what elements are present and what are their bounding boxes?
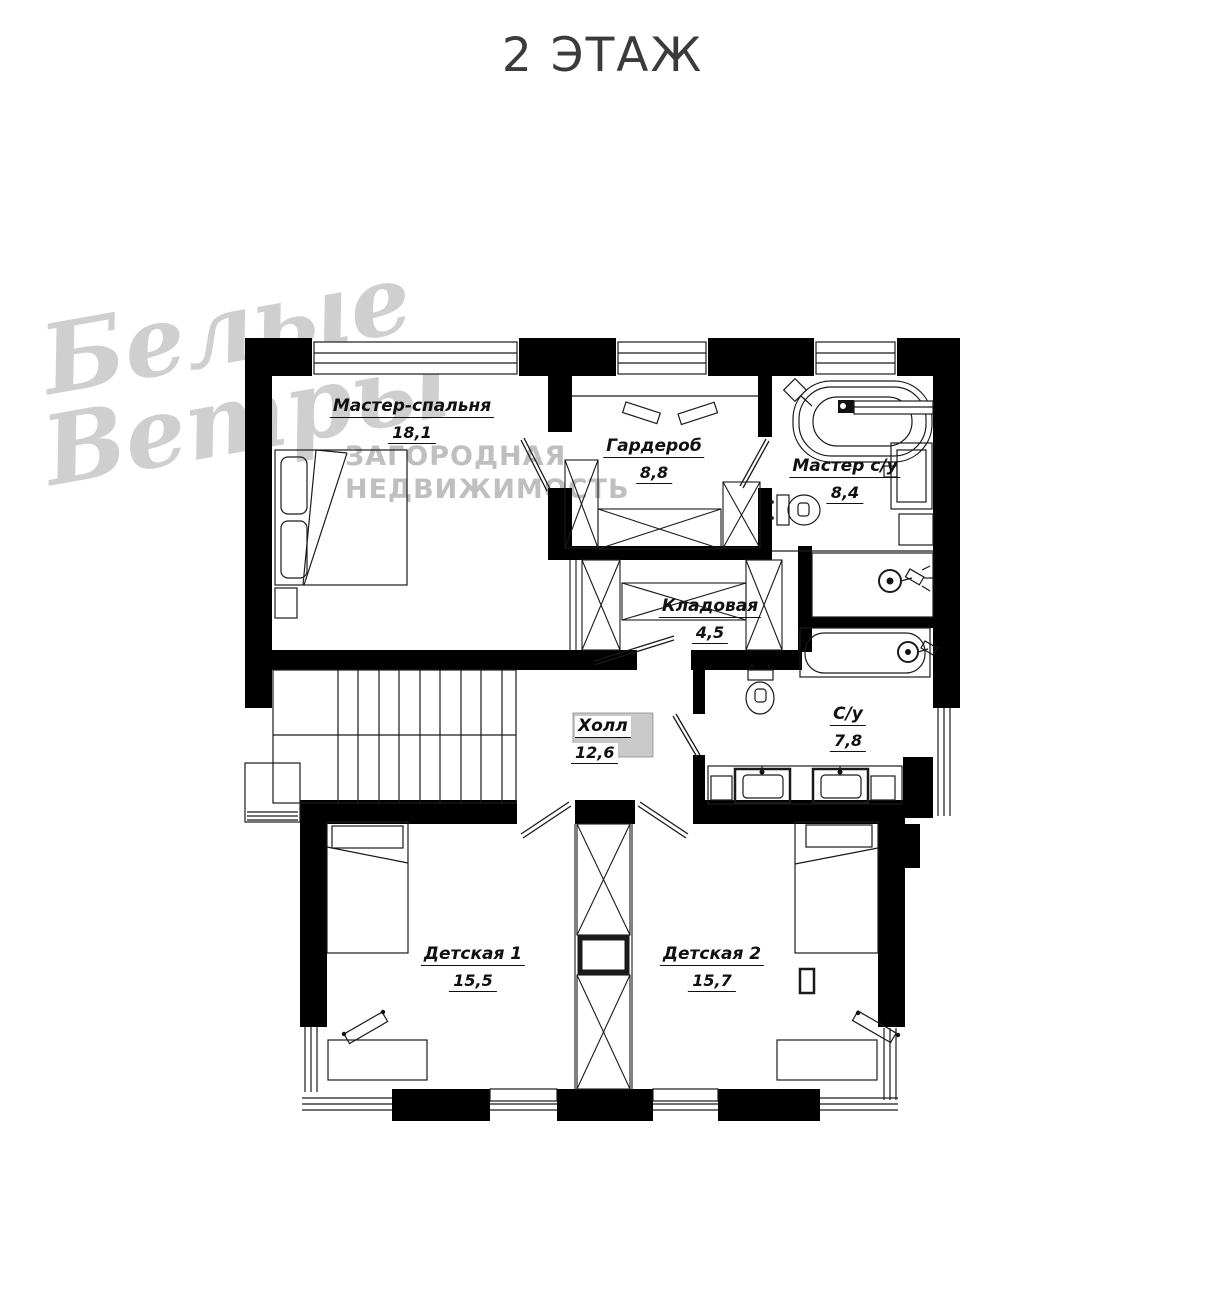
- room-label-storage: Кладовая 4,5: [659, 596, 761, 644]
- bath-fixtures: [708, 551, 937, 804]
- floor-plan-drawing: [0, 0, 1205, 1315]
- pillow: [332, 826, 403, 848]
- stool: [623, 402, 661, 424]
- room-area: 15,7: [688, 971, 735, 992]
- wardrobe-cabinet: [723, 482, 760, 548]
- window-top-2: [618, 342, 706, 374]
- wardrobe-cabinet: [598, 509, 721, 549]
- room-name: Детская 2: [660, 944, 764, 966]
- chair-knob: [381, 1010, 385, 1014]
- room-label-hall: Холл 12,6: [575, 716, 631, 764]
- room-area: 15,5: [449, 971, 496, 992]
- page-title: 2 ЭТАЖ: [0, 28, 1205, 83]
- room-label-master-bedroom: Мастер-спальня 18,1: [330, 396, 494, 444]
- shower-tray: [812, 553, 933, 617]
- wall-segment: [758, 376, 772, 437]
- pillow: [281, 521, 307, 578]
- desk: [777, 1040, 877, 1080]
- nightstand: [800, 969, 814, 993]
- stool: [678, 402, 718, 424]
- kids-room-1-furniture: [327, 822, 427, 1080]
- window-right-upper: [938, 708, 950, 816]
- room-name: Холл: [575, 716, 631, 738]
- window-left-lower: [305, 1027, 317, 1092]
- pillow: [281, 457, 307, 514]
- wall-segment: [392, 1089, 490, 1121]
- floor-plan-page: 2 ЭТАЖ БелыеВетры ЗАГОРОДНАЯ НЕДВИЖИМОСТ…: [0, 0, 1205, 1315]
- room-area: 7,8: [830, 731, 866, 752]
- door-bath: [673, 714, 700, 757]
- chair-knob: [856, 1011, 860, 1015]
- window-right-lower: [884, 1028, 896, 1100]
- blanket-fold: [327, 847, 408, 863]
- room-area: 18,1: [388, 423, 435, 444]
- window-bottom-4: [820, 1098, 898, 1110]
- chair-knob: [342, 1032, 346, 1036]
- blanket-fold: [795, 848, 878, 864]
- window-bottom-2: [490, 1089, 557, 1110]
- room-name: Кладовая: [659, 596, 761, 618]
- nightstand: [275, 588, 297, 618]
- window-top-3: [816, 342, 895, 374]
- wall-segment: [800, 617, 933, 628]
- room-name: Мастер-спальня: [330, 396, 494, 418]
- wall-segment: [548, 376, 572, 432]
- wall-segment: [897, 338, 960, 376]
- blanket-fold: [303, 450, 316, 585]
- storage-shelf: [582, 560, 620, 650]
- window-top-1: [314, 342, 517, 374]
- wall-segment: [708, 338, 814, 376]
- room-label-kids-room-1: Детская 1 15,5: [421, 944, 525, 992]
- door-master-bedroom: [521, 438, 550, 491]
- staircase: [273, 670, 516, 803]
- wall-segment: [300, 824, 327, 1027]
- master-bedroom-furniture: [275, 450, 407, 618]
- wall-segment: [718, 1089, 820, 1121]
- double-vanity: [708, 766, 902, 804]
- room-area: 8,4: [827, 483, 863, 504]
- wall-segment: [933, 376, 960, 708]
- room-area: 12,6: [571, 743, 618, 764]
- blanket-fold: [304, 453, 347, 585]
- shaft-column: [575, 824, 632, 1089]
- room-name: Гардероб: [603, 436, 704, 458]
- wall-segment: [878, 824, 905, 1027]
- wall-segment: [903, 757, 933, 818]
- door-kids-room-1: [521, 802, 571, 838]
- wall-segment: [245, 338, 312, 376]
- room-label-wardrobe: Гардероб 8,8: [603, 436, 704, 484]
- window-bottom-1: [302, 1098, 392, 1110]
- wall-segment: [245, 650, 637, 670]
- wardrobe-furniture: [572, 396, 758, 424]
- room-area: 4,5: [692, 623, 728, 644]
- chair-knob: [896, 1033, 900, 1037]
- single-bed: [795, 822, 878, 953]
- wall-segment: [693, 670, 705, 714]
- pillow: [806, 825, 872, 847]
- wall-segment: [557, 1089, 653, 1121]
- room-name: Мастер с/у: [789, 456, 900, 478]
- room-label-master-bath: Мастер с/у 8,4: [789, 456, 900, 504]
- wall-segment: [905, 824, 920, 868]
- chair: [344, 1012, 388, 1044]
- desk: [328, 1040, 427, 1080]
- door-master-bath: [740, 439, 769, 488]
- room-label-bath: С/у 7,8: [830, 704, 866, 752]
- shower-faucet: [879, 566, 933, 592]
- room-area: 8,8: [636, 463, 672, 484]
- room-name: С/у: [830, 704, 866, 726]
- wall-segment: [575, 800, 635, 824]
- wall-segment: [693, 755, 705, 804]
- bathtub: [800, 628, 937, 677]
- room-label-kids-room-2: Детская 2 15,7: [660, 944, 764, 992]
- toilet: [746, 664, 774, 714]
- single-bed: [327, 822, 408, 953]
- door-kids-room-2: [638, 802, 688, 838]
- window-bottom-3: [653, 1089, 718, 1110]
- room-name: Детская 1: [421, 944, 525, 966]
- wall-segment: [519, 338, 616, 376]
- wall-segment: [691, 650, 802, 670]
